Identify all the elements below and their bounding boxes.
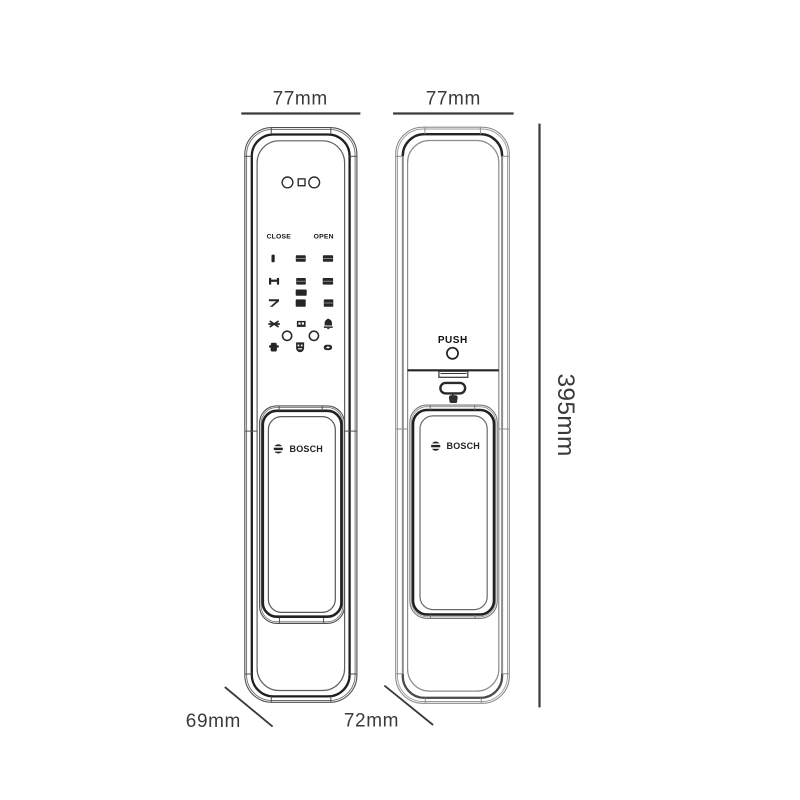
svg-text:BOSCH: BOSCH <box>290 444 324 454</box>
svg-text:BOSCH: BOSCH <box>447 441 481 451</box>
svg-text:69mm: 69mm <box>186 711 241 732</box>
svg-text:OPEN: OPEN <box>314 234 334 241</box>
svg-text:PUSH: PUSH <box>438 335 468 346</box>
svg-text:72mm: 72mm <box>344 710 399 731</box>
svg-text:77mm: 77mm <box>273 89 328 110</box>
svg-text:395mm: 395mm <box>552 373 579 456</box>
svg-text:CLOSE: CLOSE <box>267 234 292 241</box>
svg-text:77mm: 77mm <box>426 89 481 110</box>
